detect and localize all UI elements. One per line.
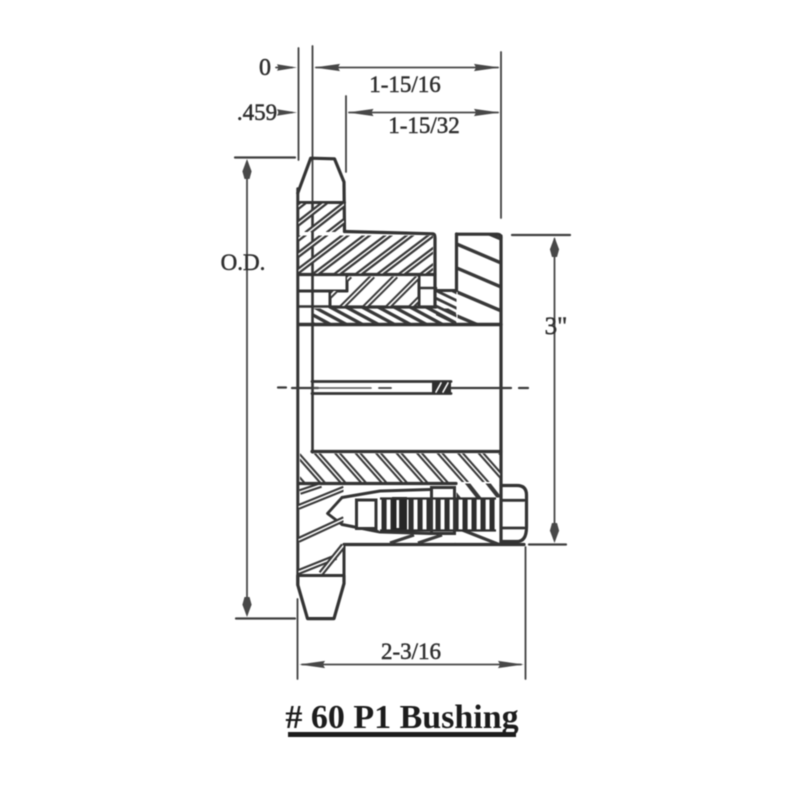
svg-text:0: 0 (259, 55, 271, 81)
svg-text:2-3/16: 2-3/16 (381, 639, 441, 664)
svg-text:.459: .459 (237, 100, 277, 125)
svg-text:# 60 P1 Bushing: # 60 P1 Bushing (285, 699, 518, 736)
svg-text:O.D.: O.D. (221, 250, 266, 275)
svg-text:3": 3" (545, 313, 568, 340)
svg-text:1-15/32: 1-15/32 (388, 113, 460, 138)
svg-text:1-15/16: 1-15/16 (369, 72, 441, 97)
